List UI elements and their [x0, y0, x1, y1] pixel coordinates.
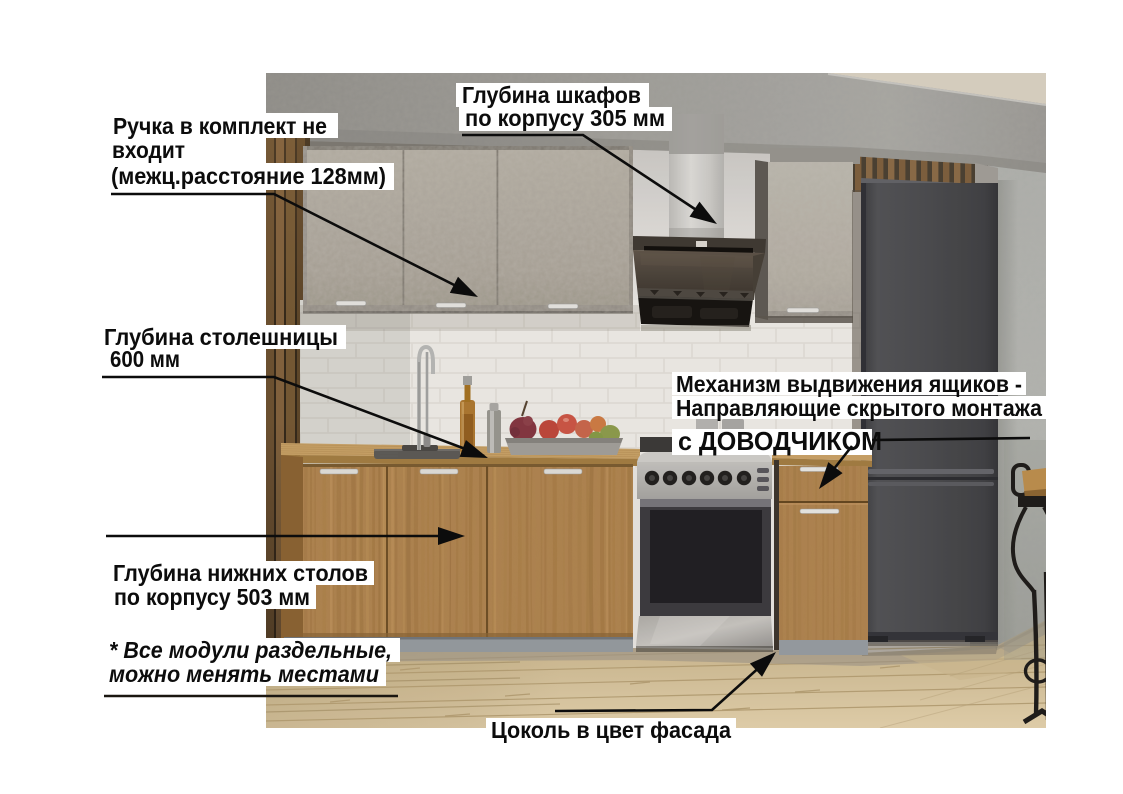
svg-text:Цоколь в цвет фасада: Цоколь в цвет фасада: [491, 717, 731, 743]
svg-text:600 мм: 600 мм: [110, 346, 180, 372]
svg-text:Глубина нижних столов: Глубина нижних столов: [113, 560, 368, 586]
svg-text:с ДОВОДЧИКОМ: с ДОВОДЧИКОМ: [678, 426, 882, 456]
svg-text:* Все модули раздельные,: * Все модули раздельные,: [109, 637, 392, 663]
svg-text:по корпусу 503 мм: по корпусу 503 мм: [114, 584, 310, 610]
svg-text:Ручка в комплект не: Ручка в комплект не: [113, 113, 327, 139]
svg-text:(межц.расстояние 128мм): (межц.расстояние 128мм): [111, 163, 386, 189]
svg-text:Механизм выдвижения ящиков -: Механизм выдвижения ящиков -: [676, 371, 1022, 397]
svg-text:Направляющие скрытого монтажа: Направляющие скрытого монтажа: [676, 395, 1042, 421]
svg-text:по корпусу 305 мм: по корпусу 305 мм: [465, 105, 665, 131]
svg-text:входит: входит: [112, 137, 185, 163]
svg-text:можно менять местами: можно менять местами: [109, 661, 379, 687]
